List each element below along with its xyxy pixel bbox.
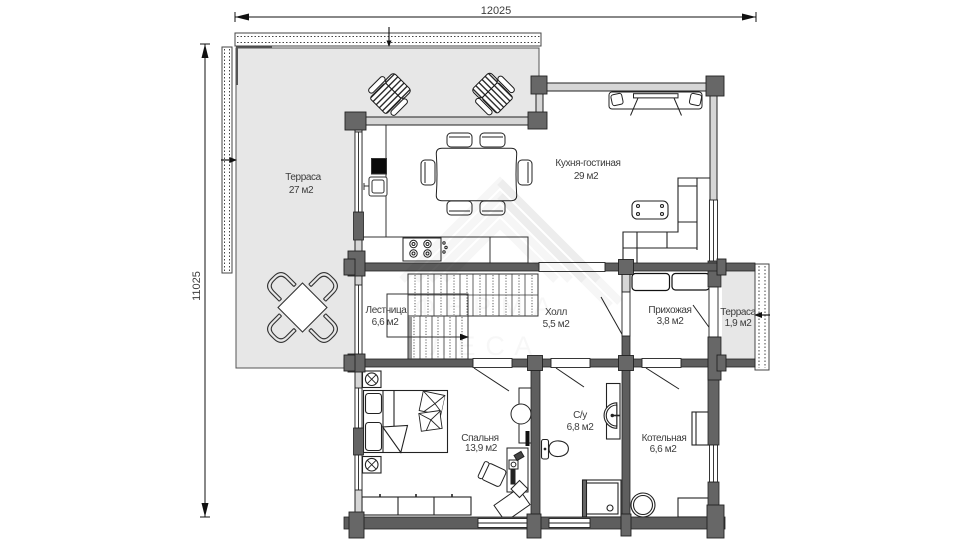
svg-text:Терраса: Терраса: [285, 172, 321, 183]
svg-text:Прихожая: Прихожая: [648, 305, 691, 316]
svg-text:ЛЕСА: ЛЕСА: [430, 331, 543, 361]
svg-text:Котельная: Котельная: [642, 433, 687, 444]
svg-text:6,8 м2: 6,8 м2: [567, 422, 595, 433]
svg-text:1,9 м2: 1,9 м2: [725, 318, 753, 329]
svg-text:3,8 м2: 3,8 м2: [657, 316, 685, 327]
svg-text:29 м2: 29 м2: [574, 171, 599, 182]
svg-text:6,6 м2: 6,6 м2: [372, 317, 400, 328]
svg-text:27 м2: 27 м2: [289, 185, 314, 196]
svg-text:Кухня-гостиная: Кухня-гостиная: [555, 158, 620, 169]
svg-text:11025: 11025: [191, 271, 203, 301]
svg-text:ФЕРМА: ФЕРМА: [415, 292, 562, 322]
svg-text:5,5 м2: 5,5 м2: [543, 319, 571, 330]
svg-text:13,9 м2: 13,9 м2: [465, 443, 498, 454]
svg-text:С/у: С/у: [573, 410, 587, 421]
svg-text:12025: 12025: [481, 5, 512, 17]
svg-text:Терраса: Терраса: [720, 307, 756, 318]
svg-text:6,6 м2: 6,6 м2: [650, 444, 678, 455]
svg-text:Лестница: Лестница: [366, 305, 408, 316]
svg-text:Холл: Холл: [545, 307, 568, 318]
